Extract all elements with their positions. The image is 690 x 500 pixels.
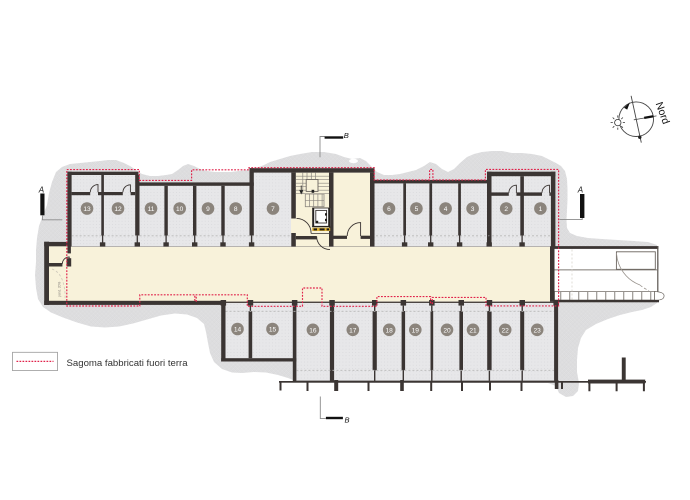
svg-text:6: 6 — [387, 206, 391, 213]
svg-text:11: 11 — [148, 206, 155, 213]
svg-text:23: 23 — [534, 327, 542, 334]
svg-text:B: B — [345, 415, 350, 424]
svg-text:22: 22 — [502, 327, 510, 334]
svg-text:B: B — [344, 131, 349, 140]
svg-text:pend. 20%: pend. 20% — [58, 282, 62, 297]
svg-text:3: 3 — [471, 206, 475, 213]
svg-text:15: 15 — [269, 327, 277, 334]
svg-text:A: A — [577, 185, 583, 194]
svg-text:20: 20 — [443, 327, 451, 334]
svg-text:Sagoma fabbricati fuori terra: Sagoma fabbricati fuori terra — [67, 358, 189, 369]
svg-text:19: 19 — [412, 327, 420, 334]
svg-text:18: 18 — [386, 327, 394, 334]
svg-text:10: 10 — [176, 206, 184, 213]
svg-text:16: 16 — [309, 327, 317, 334]
svg-text:2: 2 — [504, 206, 508, 213]
svg-text:13: 13 — [83, 206, 91, 213]
svg-text:14: 14 — [234, 327, 242, 334]
svg-text:12: 12 — [114, 206, 122, 213]
svg-text:9: 9 — [206, 206, 210, 213]
svg-text:7: 7 — [271, 206, 275, 213]
svg-text:A: A — [38, 185, 44, 194]
svg-text:17: 17 — [349, 327, 357, 334]
svg-text:8: 8 — [234, 206, 238, 213]
svg-text:4: 4 — [444, 206, 448, 213]
svg-text:1: 1 — [539, 206, 543, 213]
svg-text:5: 5 — [415, 206, 419, 213]
svg-text:21: 21 — [469, 327, 477, 334]
